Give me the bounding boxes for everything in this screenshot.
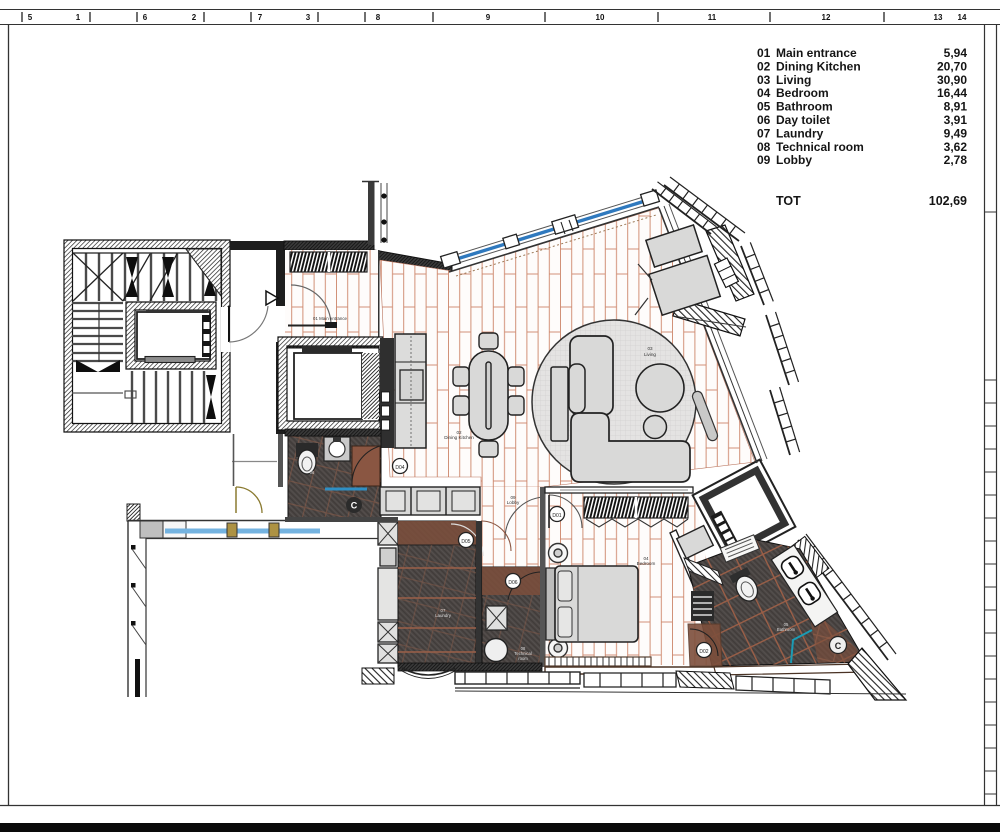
svg-text:Lobby: Lobby — [776, 153, 812, 167]
svg-text:01: 01 — [757, 46, 771, 60]
svg-text:3,91: 3,91 — [944, 113, 968, 127]
svg-text:Living: Living — [644, 352, 656, 357]
svg-text:D01: D01 — [552, 513, 561, 519]
svg-text:04: 04 — [757, 86, 771, 100]
svg-text:3: 3 — [306, 13, 311, 22]
svg-text:09: 09 — [757, 153, 771, 167]
svg-text:12: 12 — [822, 13, 831, 22]
svg-text:16,44: 16,44 — [937, 86, 967, 100]
svg-text:Dining Kitchen: Dining Kitchen — [444, 435, 474, 440]
svg-text:08: 08 — [757, 140, 771, 154]
svg-text:C: C — [835, 641, 842, 651]
svg-text:9: 9 — [486, 13, 491, 22]
svg-text:30,90: 30,90 — [937, 73, 967, 87]
svg-text:Bathroom: Bathroom — [777, 627, 796, 632]
svg-text:2,78: 2,78 — [944, 153, 968, 167]
svg-text:Lobby: Lobby — [507, 500, 520, 505]
svg-text:TOT: TOT — [776, 194, 801, 208]
svg-text:Living: Living — [776, 73, 811, 87]
svg-text:01 Main entrance: 01 Main entrance — [313, 316, 347, 321]
svg-text:5: 5 — [28, 13, 33, 22]
svg-text:07: 07 — [757, 126, 771, 140]
svg-text:D05: D05 — [461, 539, 470, 545]
svg-text:8: 8 — [376, 13, 381, 22]
svg-text:room: room — [518, 656, 528, 661]
svg-text:Bedroom: Bedroom — [637, 561, 656, 566]
svg-text:Technical room: Technical room — [776, 140, 864, 154]
svg-text:8,91: 8,91 — [944, 100, 968, 114]
svg-text:Laundry: Laundry — [776, 126, 824, 140]
svg-text:Day toilet: Day toilet — [776, 113, 830, 127]
svg-text:D06: D06 — [508, 580, 517, 586]
svg-text:11: 11 — [708, 13, 717, 22]
svg-text:02: 02 — [757, 59, 771, 73]
svg-text:1: 1 — [76, 13, 81, 22]
svg-text:5,94: 5,94 — [944, 46, 968, 60]
svg-text:Laundry: Laundry — [435, 613, 452, 618]
svg-text:05: 05 — [757, 100, 771, 114]
svg-text:102,69: 102,69 — [929, 194, 967, 208]
svg-text:10: 10 — [596, 13, 605, 22]
svg-text:Bathroom: Bathroom — [776, 100, 833, 114]
svg-text:7: 7 — [258, 13, 263, 22]
svg-text:D02: D02 — [699, 649, 708, 655]
svg-text:13: 13 — [934, 13, 943, 22]
svg-text:Dining Kitchen: Dining Kitchen — [776, 59, 861, 73]
svg-text:9,49: 9,49 — [944, 126, 968, 140]
svg-text:2: 2 — [192, 13, 197, 22]
svg-text:Bedroom: Bedroom — [776, 86, 829, 100]
svg-text:06: 06 — [310, 470, 315, 475]
svg-text:03: 03 — [757, 73, 771, 87]
svg-text:14: 14 — [958, 13, 967, 22]
svg-text:D04: D04 — [395, 465, 404, 471]
svg-text:06: 06 — [757, 113, 771, 127]
svg-text:6: 6 — [143, 13, 148, 22]
svg-text:Main entrance: Main entrance — [776, 46, 857, 60]
svg-text:3,62: 3,62 — [944, 140, 968, 154]
svg-text:20,70: 20,70 — [937, 59, 967, 73]
svg-text:C: C — [351, 501, 358, 511]
svg-text:03: 03 — [647, 346, 653, 351]
